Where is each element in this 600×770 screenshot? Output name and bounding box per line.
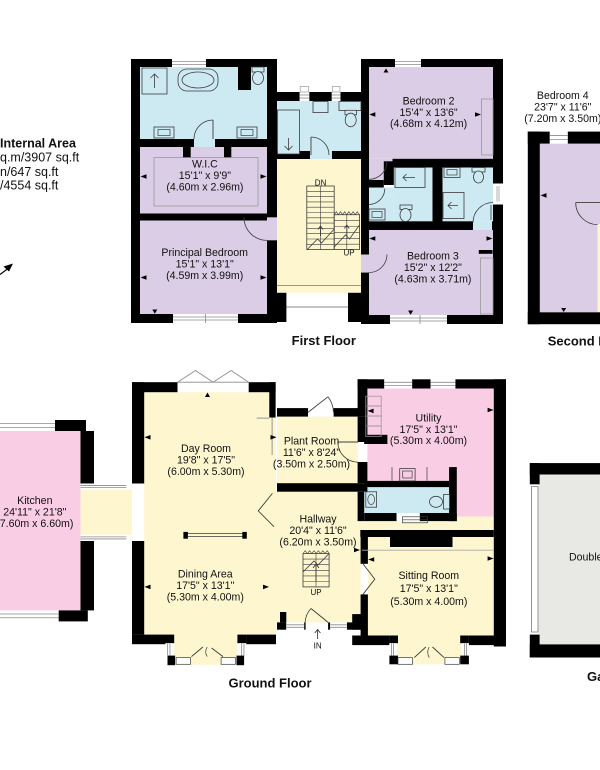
svg-text:DN: DN xyxy=(315,178,327,187)
svg-text:Bedroom 4: Bedroom 4 xyxy=(537,90,589,102)
svg-text:Dining Area: Dining Area xyxy=(178,568,233,580)
svg-text:Hallway: Hallway xyxy=(299,514,337,526)
svg-text:Sitting Room: Sitting Room xyxy=(398,570,459,582)
svg-text:(4.63m x 3.71m): (4.63m x 3.71m) xyxy=(394,273,471,285)
svg-text:(3.50m x 2.50m): (3.50m x 2.50m) xyxy=(273,458,350,470)
svg-text:Bedroom 3: Bedroom 3 xyxy=(407,250,459,262)
svg-text:20'4" x 11'6": 20'4" x 11'6" xyxy=(289,525,347,537)
svg-text:(5.30m x 4.00m): (5.30m x 4.00m) xyxy=(390,596,467,608)
svg-text:Kitchen: Kitchen xyxy=(17,495,52,507)
svg-text:UP: UP xyxy=(343,249,354,258)
svg-text:Bedroom 2: Bedroom 2 xyxy=(403,95,455,107)
svg-text:IN: IN xyxy=(314,642,322,651)
svg-text:Garage: Garage xyxy=(587,669,600,684)
svg-text:Utility: Utility xyxy=(416,412,443,424)
svg-text:Ground Floor: Ground Floor xyxy=(228,675,311,690)
svg-text:Second Floor: Second Floor xyxy=(548,333,600,348)
svg-text:Principal Bedroom: Principal Bedroom xyxy=(161,247,248,259)
svg-text:15'4" x 13'6": 15'4" x 13'6" xyxy=(400,107,458,119)
svg-text:q.m/3907 sq.ft: q.m/3907 sq.ft xyxy=(0,150,80,164)
svg-text:15'2" x 12'2": 15'2" x 12'2" xyxy=(404,262,462,274)
svg-text:19'8" x 17'5": 19'8" x 17'5" xyxy=(177,454,235,466)
svg-text:(4.68m x 4.12m): (4.68m x 4.12m) xyxy=(390,118,467,130)
svg-text:17'5" x 13'1": 17'5" x 13'1" xyxy=(400,583,458,595)
svg-text:UP: UP xyxy=(310,588,321,597)
svg-text:Double Garage: Double Garage xyxy=(569,552,600,564)
svg-text:23'7" x 11'6": 23'7" x 11'6" xyxy=(534,101,592,113)
svg-text:(4.60m x 2.96m): (4.60m x 2.96m) xyxy=(166,182,243,194)
svg-text:17'5" x 13'1": 17'5" x 13'1" xyxy=(176,580,234,592)
svg-text:First Floor: First Floor xyxy=(292,333,356,348)
svg-text:15'1" x 13'1": 15'1" x 13'1" xyxy=(176,259,234,271)
svg-text:n/647 sq.ft: n/647 sq.ft xyxy=(0,165,59,179)
svg-text:(7.60m x 6.60m): (7.60m x 6.60m) xyxy=(0,518,73,530)
svg-text:Plant Room: Plant Room xyxy=(284,435,340,447)
svg-text:17'5" x 13'1": 17'5" x 13'1" xyxy=(399,424,457,436)
svg-text:15'1" x 9'9": 15'1" x 9'9" xyxy=(179,170,231,182)
svg-text:24'11" x 21'8": 24'11" x 21'8" xyxy=(3,506,66,518)
svg-text:/4554 sq.ft: /4554 sq.ft xyxy=(0,179,59,193)
svg-text:Day Room: Day Room xyxy=(181,443,231,455)
svg-text:11'6" x 8'24": 11'6" x 8'24" xyxy=(283,447,341,459)
svg-text:(6.20m x 3.50m): (6.20m x 3.50m) xyxy=(279,536,356,548)
svg-text:Internal Area: Internal Area xyxy=(0,137,77,151)
svg-text:(4.59m x 3.99m): (4.59m x 3.99m) xyxy=(166,270,243,282)
svg-text:(6.00m x 5.30m): (6.00m x 5.30m) xyxy=(167,466,244,478)
svg-text:(5.30m x 4.00m): (5.30m x 4.00m) xyxy=(167,592,244,604)
svg-text:(7.20m x 3.50m): (7.20m x 3.50m) xyxy=(524,113,600,125)
svg-text:W.I.C: W.I.C xyxy=(192,159,218,171)
svg-text:(5.30m x 4.00m): (5.30m x 4.00m) xyxy=(390,435,467,447)
